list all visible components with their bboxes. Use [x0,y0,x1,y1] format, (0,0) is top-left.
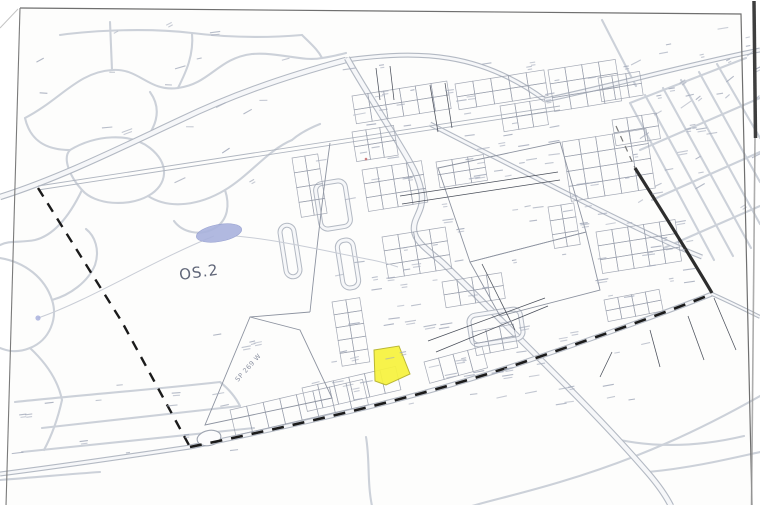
scanned-map-page: OS.2 SP 269 W [0,0,760,505]
map-canvas: OS.2 SP 269 W [0,0,760,505]
page-sheet [6,8,752,505]
small-pond [35,315,40,320]
scan-edge-shadow [752,1,756,505]
survey-mark [365,158,368,161]
scan-corner-crease [0,9,18,28]
